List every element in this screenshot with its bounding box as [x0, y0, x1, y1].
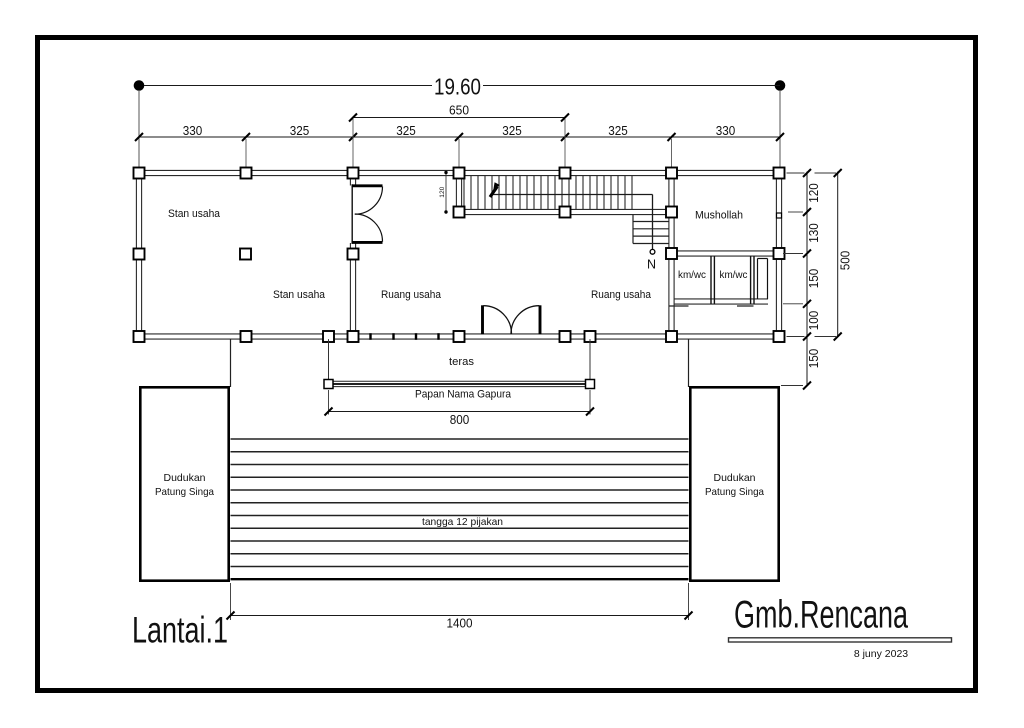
svg-text:325: 325	[290, 123, 310, 138]
svg-text:Patung Singa: Patung Singa	[155, 486, 214, 498]
svg-text:Dudukan: Dudukan	[714, 472, 756, 484]
svg-text:teras: teras	[449, 356, 474, 368]
svg-text:Patung Singa: Patung Singa	[705, 486, 764, 498]
svg-text:325: 325	[608, 123, 628, 138]
svg-text:330: 330	[183, 123, 203, 138]
svg-text:120: 120	[806, 183, 821, 203]
svg-text:8 juny 2023: 8 juny 2023	[854, 648, 908, 660]
svg-text:1400: 1400	[447, 617, 473, 631]
svg-text:325: 325	[502, 123, 522, 138]
svg-text:800: 800	[450, 413, 470, 427]
svg-text:130: 130	[806, 223, 821, 243]
svg-text:km/wc: km/wc	[678, 270, 706, 281]
svg-text:120: 120	[440, 186, 446, 198]
svg-text:Ruang usaha: Ruang usaha	[591, 289, 652, 301]
svg-text:Lantai.1: Lantai.1	[132, 610, 228, 651]
svg-text:19.60: 19.60	[434, 74, 481, 100]
svg-text:100: 100	[806, 311, 821, 331]
svg-text:Ruang usaha: Ruang usaha	[381, 289, 442, 301]
svg-text:325: 325	[396, 123, 416, 138]
svg-text:Gmb.Rencana: Gmb.Rencana	[734, 594, 908, 637]
svg-text:km/wc: km/wc	[720, 270, 748, 281]
svg-text:Papan Nama Gapura: Papan Nama Gapura	[415, 389, 512, 401]
svg-text:N: N	[647, 258, 656, 272]
svg-text:150: 150	[806, 349, 821, 369]
svg-text:Dudukan: Dudukan	[164, 472, 206, 484]
svg-text:650: 650	[449, 102, 469, 117]
svg-text:Stan usaha: Stan usaha	[168, 208, 221, 220]
svg-text:tangga 12 pijakan: tangga 12 pijakan	[422, 516, 503, 528]
svg-text:150: 150	[806, 269, 821, 289]
svg-text:Mushollah: Mushollah	[695, 210, 743, 222]
svg-text:Stan usaha: Stan usaha	[273, 289, 326, 301]
svg-text:500: 500	[838, 251, 853, 271]
svg-text:330: 330	[716, 123, 736, 138]
